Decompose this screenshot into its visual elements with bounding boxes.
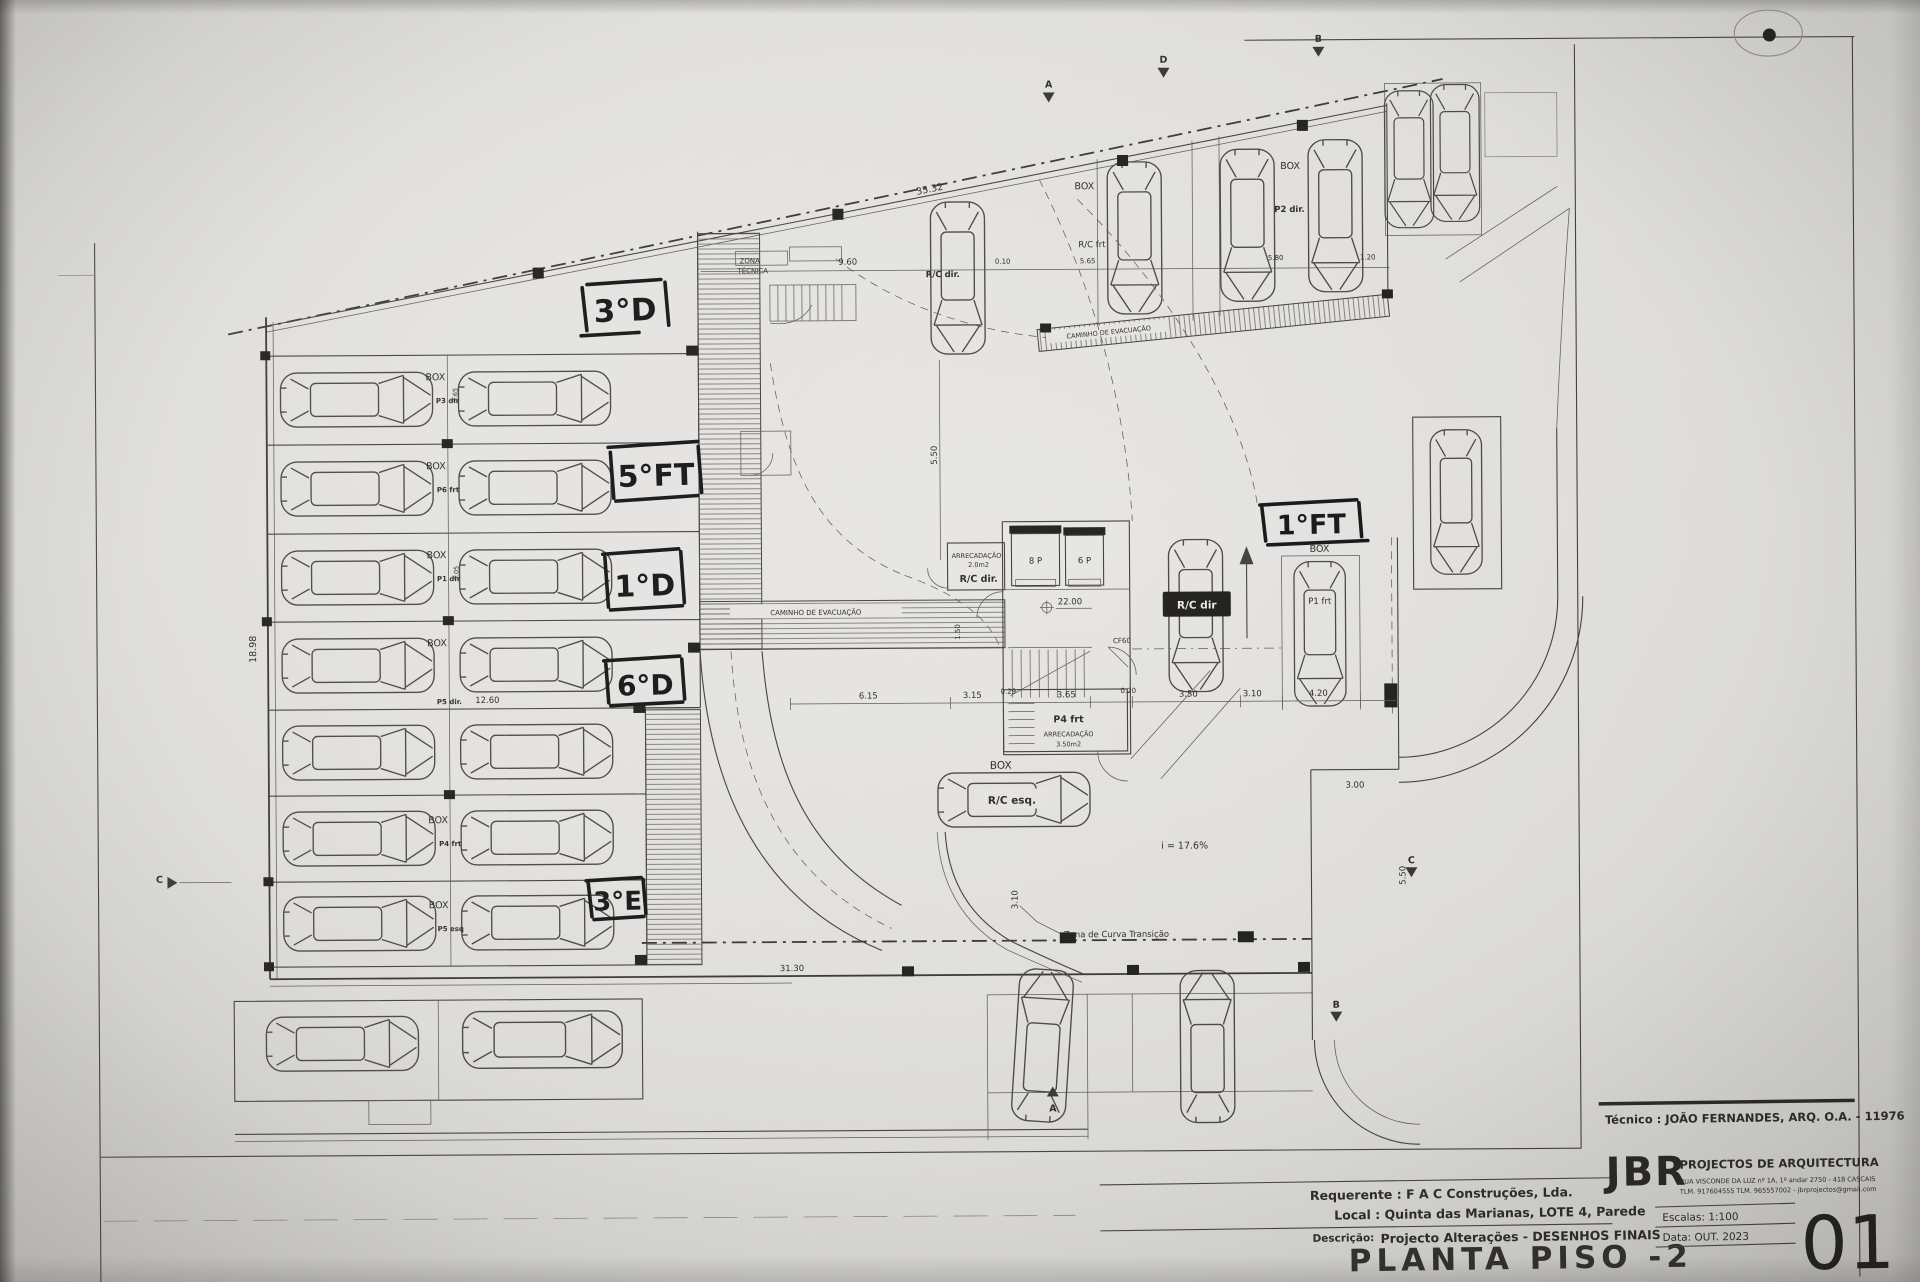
car-rc-frt <box>1107 162 1162 314</box>
stall-label: P4 frt <box>439 840 462 848</box>
rc-dir-store-label: R/C dir. <box>960 574 998 585</box>
dim-12-60: 12.60 <box>475 696 499 706</box>
top-area: ZONA TÉCNICA 9.60 0.10 35.32 R/C dir. BO… <box>700 82 1559 355</box>
arrecadacao-small-area: 2.0m2 <box>968 561 989 569</box>
box-label: BOX <box>1310 544 1330 555</box>
car-p2-2 <box>1308 140 1363 292</box>
section-a-bottom: A <box>1049 1103 1057 1114</box>
handwritten-1ft: 1°FT <box>1260 500 1368 546</box>
firm-logo: JBR <box>1602 1149 1688 1196</box>
svg-text:3°D: 3°D <box>593 292 657 331</box>
handwritten-6d: 6°D <box>604 656 685 706</box>
car-bottom-2 <box>462 1011 622 1069</box>
arrecadacao-small-label: ARRECADAÇÃO <box>952 551 1002 560</box>
svg-text:1°FT: 1°FT <box>1276 509 1346 542</box>
box-label: BOX <box>990 760 1012 772</box>
handwritten-1d: 1°D <box>603 549 685 611</box>
escalas-text: Escalas: 1:100 <box>1662 1211 1738 1224</box>
tecnico-text: Técnico : JOÃO FERNANDES, ARQ. O.A. - 11… <box>1605 1108 1905 1127</box>
parked-cars-left <box>280 371 614 951</box>
zona-tecnica-line1: ZONA <box>739 257 760 265</box>
lift-8p-label: 8 P <box>1029 556 1042 566</box>
section-b-bottom: B <box>1333 1000 1340 1011</box>
dim-0-10: 0.10 <box>995 258 1011 266</box>
stall-dim: 3.05 <box>453 566 461 581</box>
dim-31-30: 31.30 <box>780 964 804 974</box>
bottom-outside <box>234 966 1420 1152</box>
section-a-top: A <box>1045 79 1053 90</box>
rc-esq-label: R/C esq. <box>988 795 1036 807</box>
data-text: Data: OUT. 2023 <box>1662 1231 1749 1244</box>
box-label: BOX <box>427 550 447 561</box>
drawing-photo: BOX P3 dir 3.65 BOX P6 frt BOX P1 dir 3.… <box>0 0 1920 1282</box>
evac-band-top: CAMINHO DE EVACUAÇÃO <box>1037 294 1389 351</box>
local-text: Local : Quinta das Marianas, LOTE 4, Par… <box>1334 1203 1646 1222</box>
rc-dir-top-label: R/C dir. <box>926 270 960 280</box>
arrecadacao-big-label: ARRECADAÇÃO <box>1044 729 1094 738</box>
box-label: BOX <box>1280 161 1300 172</box>
requerente-text: Requerente : F A C Construções, Lda. <box>1310 1184 1573 1203</box>
left-parking-block: BOX P3 dir 3.65 BOX P6 frt BOX P1 dir 3.… <box>266 231 764 967</box>
car-p1-frt <box>1294 561 1346 706</box>
right-side-roads <box>1395 186 1584 782</box>
dim-3-10-v: 3.10 <box>1011 890 1021 909</box>
firm-address: RUA VISCONDE DA LUZ nº 1A, 1º andar 2750… <box>1680 1175 1876 1186</box>
rc-dir-car-label: R/C dir <box>1177 599 1217 611</box>
incline-label: i = 17.6% <box>1161 840 1208 851</box>
floor-plan-svg: BOX P3 dir 3.65 BOX P6 frt BOX P1 dir 3.… <box>0 0 1920 1282</box>
handwritten-3d: 3°D <box>579 279 669 336</box>
level-22-label: 22.00 <box>1058 597 1082 607</box>
firm-contacts: TLM. 917604555 TLM. 965557002 - jbrproje… <box>1679 1185 1877 1196</box>
dim-0-20: 0.20 <box>1120 687 1136 695</box>
car-bottom-3 <box>1011 968 1075 1123</box>
lift-6p-label: 6 P <box>1078 556 1091 566</box>
car-p2-1 <box>1220 149 1275 301</box>
dim-6-15: 6.15 <box>859 692 878 702</box>
car-right-mid <box>1430 430 1482 575</box>
box-label: BOX <box>1074 181 1094 192</box>
handwritten-3e: 3°E <box>586 877 646 919</box>
ramp-hatch-lower <box>645 710 702 965</box>
dim-1-50: 1.50 <box>954 624 962 640</box>
ramp-hatch-upper <box>698 233 763 649</box>
dim-3-15: 3.15 <box>963 691 982 701</box>
stall-dim: 3.65 <box>451 388 459 403</box>
dim-3-65: 3.65 <box>1057 690 1076 700</box>
box-label: BOX <box>425 372 445 383</box>
stall-label: P5 dir. <box>437 698 462 706</box>
p4-frt-label: P4 frt <box>1053 714 1084 725</box>
box-label: BOX <box>427 638 447 649</box>
dim-3-00: 3.00 <box>1345 781 1364 791</box>
dim-4-20: 4.20 <box>1309 689 1328 699</box>
title-block: Técnico : JOÃO FERNANDES, ARQ. O.A. - 11… <box>1099 1100 1907 1282</box>
dim-0-29: 0.29 <box>1000 688 1016 696</box>
section-b-top: B <box>1315 34 1322 45</box>
caminho-center-label: CAMINHO DE EVACUAÇÃO <box>770 608 862 618</box>
dim-18-98: 18.98 <box>248 636 259 663</box>
bottom-center: BOX R/C esq. i = 17.6% Zona de Curva Tra… <box>779 758 1209 984</box>
stall-label: P6 frt <box>437 486 460 494</box>
svg-text:3°E: 3°E <box>593 886 643 917</box>
car-topright-1 <box>1384 91 1433 228</box>
stall-label: P5 esq <box>438 925 464 933</box>
cf60-label: CF60 <box>1113 637 1131 645</box>
dim-3-50: 3.50 <box>1179 690 1198 700</box>
svg-text:5°FT: 5°FT <box>617 458 695 495</box>
punch-hole-dot <box>1763 29 1776 42</box>
section-c-left: C <box>156 875 163 886</box>
dim-3-10: 3.10 <box>1243 689 1262 699</box>
drive-aisle: CAMINHO DE EVACUAÇÃO <box>697 178 1284 952</box>
p1-frt-label: P1 frt <box>1308 597 1332 607</box>
zona-tecnica-line2: TÉCNICA <box>736 266 768 275</box>
dim-1-20: 1.20 <box>1360 253 1376 261</box>
box-label: BOX <box>428 815 448 826</box>
section-c-right: C <box>1408 855 1415 866</box>
central-core: ARRECADAÇÃO 2.0m2 R/C dir. 8 P 6 P 22.00… <box>927 521 1137 782</box>
svg-text:6°D: 6°D <box>617 668 674 702</box>
section-markers: A D B C C B A <box>151 33 1419 1120</box>
dim-5-80: 5.80 <box>1268 254 1284 262</box>
dim-5-65: 5.65 <box>1080 257 1096 265</box>
svg-text:1°D: 1°D <box>614 568 676 605</box>
car-bottom-1 <box>266 1016 418 1071</box>
sheet-number: 01 <box>1800 1200 1895 1282</box>
curva-label: Zona de Curva Transição <box>1064 930 1169 941</box>
box-label: BOX <box>426 461 446 472</box>
arrecadacao-big-area: 3.50m2 <box>1056 740 1081 748</box>
dim-5-50-mid: 5.50 <box>930 446 940 465</box>
box-label: BOX <box>429 900 449 911</box>
p2-dir-label: P2 dir. <box>1274 205 1304 215</box>
sheet-title: PLANTA PISO -2 <box>1349 1239 1694 1280</box>
firm-subtitle: PROJECTOS DE ARQUITECTURA <box>1679 1155 1878 1172</box>
rc-frt-label: R/C frt <box>1078 240 1106 250</box>
section-d-top: D <box>1159 55 1167 66</box>
handwritten-5ft: 5°FT <box>608 441 702 501</box>
car-topright-2 <box>1430 84 1479 221</box>
